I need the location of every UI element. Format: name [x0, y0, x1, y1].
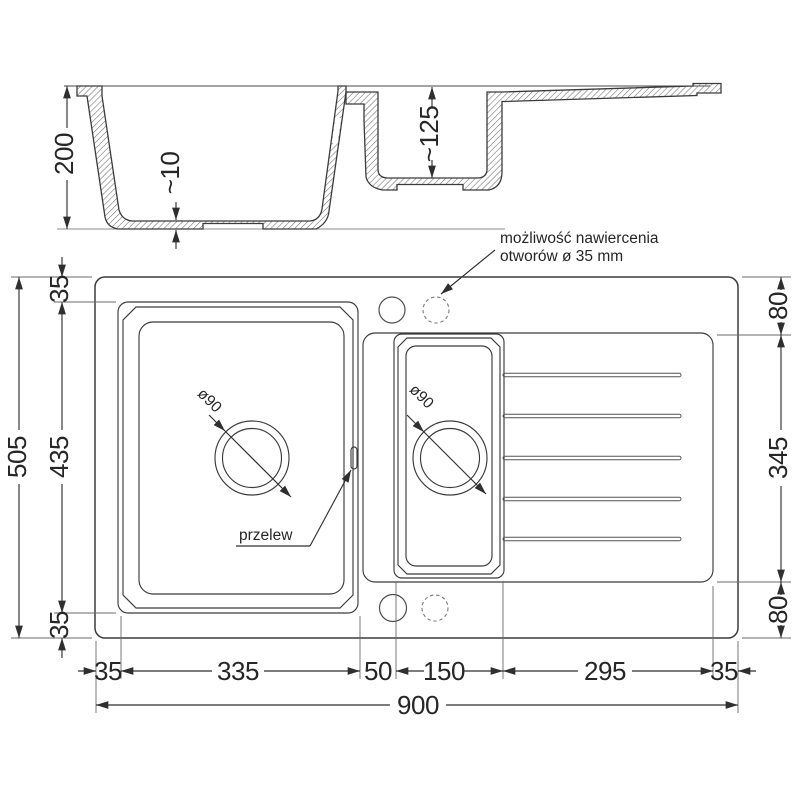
drill-note-line1: możliwość nawiercenia — [500, 230, 659, 247]
dim-section-depth: 200 — [49, 86, 79, 229]
dim-bottom-thickness: ~10 — [155, 152, 185, 249]
drill-note: możliwość nawiercenia otworów ø 35 mm — [441, 230, 659, 294]
dim-label-right-80-top: 80 — [763, 292, 793, 320]
drawing-canvas: 200 ~10 ~125 możliwość nawiercenia otwor… — [0, 0, 800, 800]
dim-label-295: 295 — [584, 656, 626, 686]
dim-label-335: 335 — [217, 656, 259, 686]
dim-label-left-35-top: 35 — [44, 275, 74, 303]
main-bowl-plan: ø90 — [118, 302, 358, 613]
dim-label-10: ~10 — [155, 152, 185, 195]
faucet-hole-bottom — [380, 595, 407, 622]
dim-label-left-35-bottom: 35 — [44, 611, 74, 639]
optional-hole-top — [423, 297, 449, 323]
drill-note-line2: otworów ø 35 mm — [500, 248, 623, 265]
dims-left: 505 35 435 35 — [2, 257, 116, 658]
main-bowl-section — [77, 86, 346, 229]
dim-label-right-80-bottom: 80 — [763, 596, 793, 624]
dim-small-bowl-depth: ~125 — [414, 87, 444, 178]
cross-section-view: 200 ~10 ~125 — [49, 84, 721, 250]
drainer-grooves — [503, 373, 681, 541]
small-bowl-plan: ø90 — [394, 334, 504, 578]
dims-right: 80 345 80 — [717, 277, 793, 638]
dims-bottom: 35 335 50 150 295 35 900 — [78, 581, 756, 720]
dim-label-50: 50 — [364, 656, 392, 686]
dim-label-bottom-35-right: 35 — [710, 656, 738, 686]
faucet-hole-top — [379, 297, 405, 323]
dim-label-200: 200 — [49, 133, 79, 175]
sink-outer-body — [95, 277, 738, 638]
dim-label-505: 505 — [2, 436, 32, 478]
dim-label-345: 345 — [763, 437, 793, 479]
overflow-label: przelew — [239, 527, 293, 544]
drainer-region — [363, 333, 713, 582]
drill-note-leader — [441, 250, 495, 294]
overflow-callout: przelew — [236, 447, 357, 546]
dim-label-150: 150 — [423, 656, 465, 686]
small-drain-label: ø90 — [406, 381, 437, 412]
main-drain-label: ø90 — [194, 385, 225, 416]
dim-label-125: ~125 — [414, 106, 444, 163]
dim-label-435: 435 — [44, 436, 74, 478]
overflow-slot-plan — [351, 447, 357, 469]
plan-view: ø90 ø90 przelew — [95, 277, 738, 638]
dim-label-900: 900 — [397, 690, 439, 720]
small-bowl-drainer-section — [346, 84, 721, 191]
dim-label-bottom-35-left: 35 — [94, 656, 122, 686]
sink-technical-drawing: 200 ~10 ~125 możliwość nawiercenia otwor… — [0, 0, 800, 800]
optional-hole-bottom — [422, 595, 448, 621]
